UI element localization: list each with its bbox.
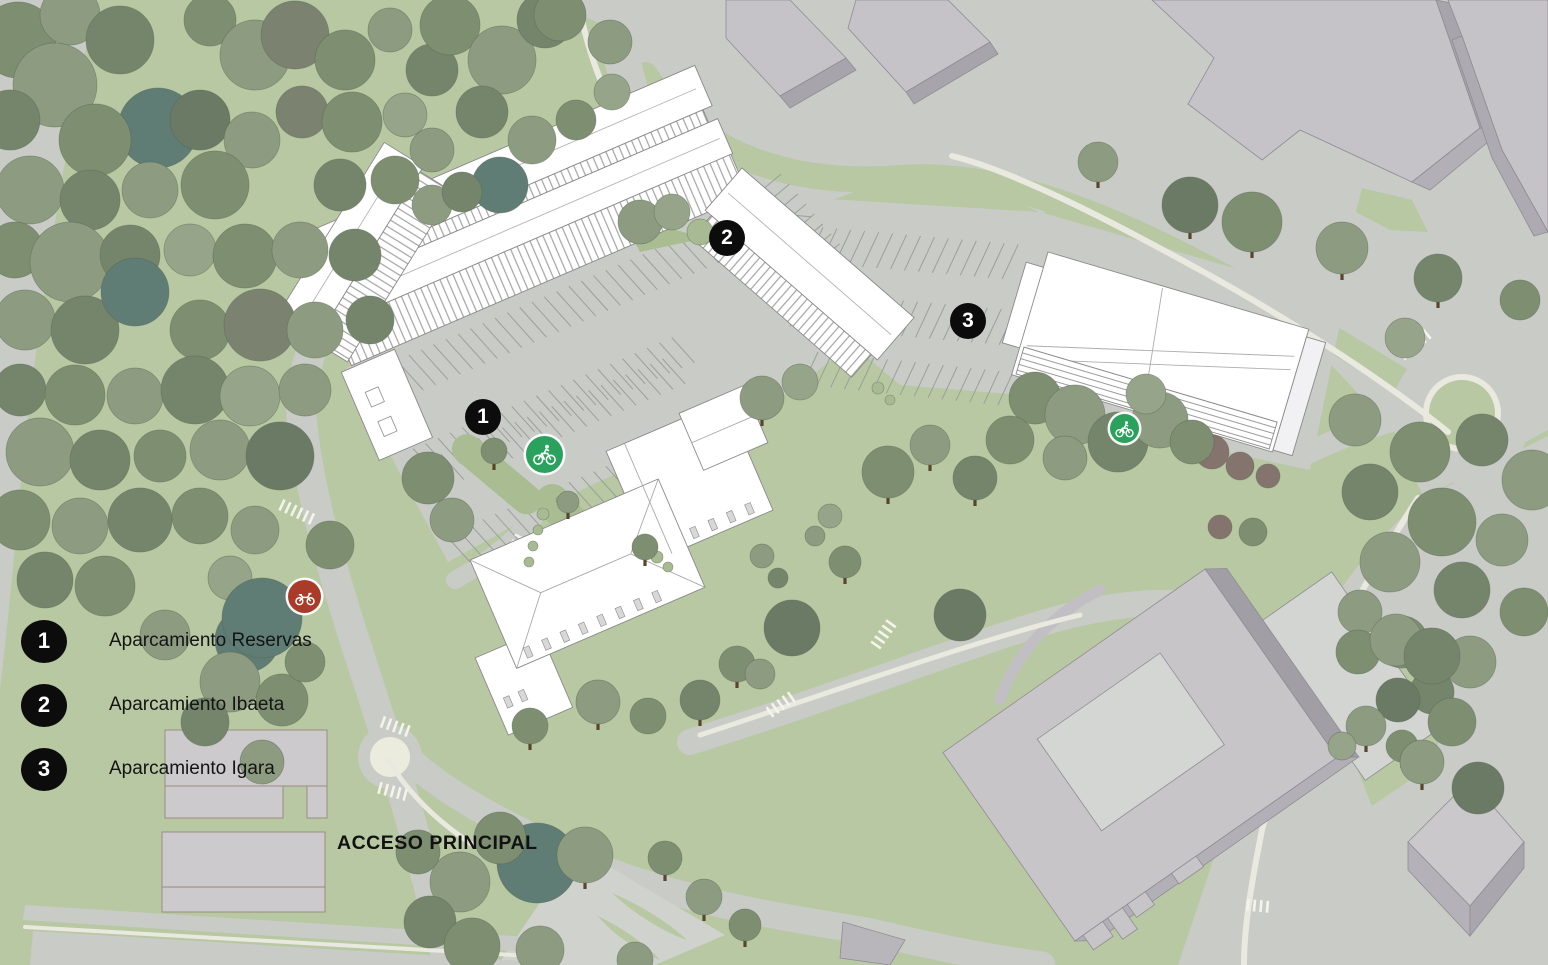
bicycle-icon bbox=[531, 442, 558, 467]
legend-number-3: 3 bbox=[38, 756, 50, 782]
mini-roundabout bbox=[358, 725, 422, 789]
legend-item-1: 1 Aparcamiento Reservas bbox=[21, 609, 312, 673]
legend-number-1: 1 bbox=[38, 628, 50, 654]
bicycle-icon bbox=[1114, 419, 1135, 439]
map-marker-1-number: 1 bbox=[477, 405, 489, 429]
legend-item-3: 3 Aparcamiento Igara bbox=[21, 737, 312, 801]
map-illustration bbox=[0, 0, 1548, 965]
map-marker-2-number: 2 bbox=[721, 226, 733, 250]
map-marker-1[interactable]: 1 bbox=[465, 399, 501, 435]
legend-label-3: Aparcamiento Igara bbox=[109, 758, 275, 780]
legend-number-2: 2 bbox=[38, 692, 50, 718]
map-marker-3[interactable]: 3 bbox=[950, 303, 986, 339]
legend: 1 Aparcamiento Reservas 2 Aparcamiento I… bbox=[21, 609, 312, 801]
legend-dot-1: 1 bbox=[21, 620, 67, 663]
legend-dot-3: 3 bbox=[21, 748, 67, 791]
bicycle-parking-marker[interactable] bbox=[526, 436, 563, 473]
map-marker-3-number: 3 bbox=[962, 309, 974, 333]
campus-map: 1 2 3 bbox=[0, 0, 1548, 965]
main-access-label: ACCESO PRINCIPAL bbox=[337, 832, 538, 855]
legend-label-1: Aparcamiento Reservas bbox=[109, 630, 312, 652]
map-marker-2[interactable]: 2 bbox=[709, 220, 745, 256]
legend-item-2: 2 Aparcamiento Ibaeta bbox=[21, 673, 312, 737]
legend-label-2: Aparcamiento Ibaeta bbox=[109, 694, 284, 716]
bicycle-parking-marker[interactable] bbox=[1110, 414, 1139, 443]
legend-dot-2: 2 bbox=[21, 684, 67, 727]
motorcycle-icon bbox=[293, 586, 317, 608]
